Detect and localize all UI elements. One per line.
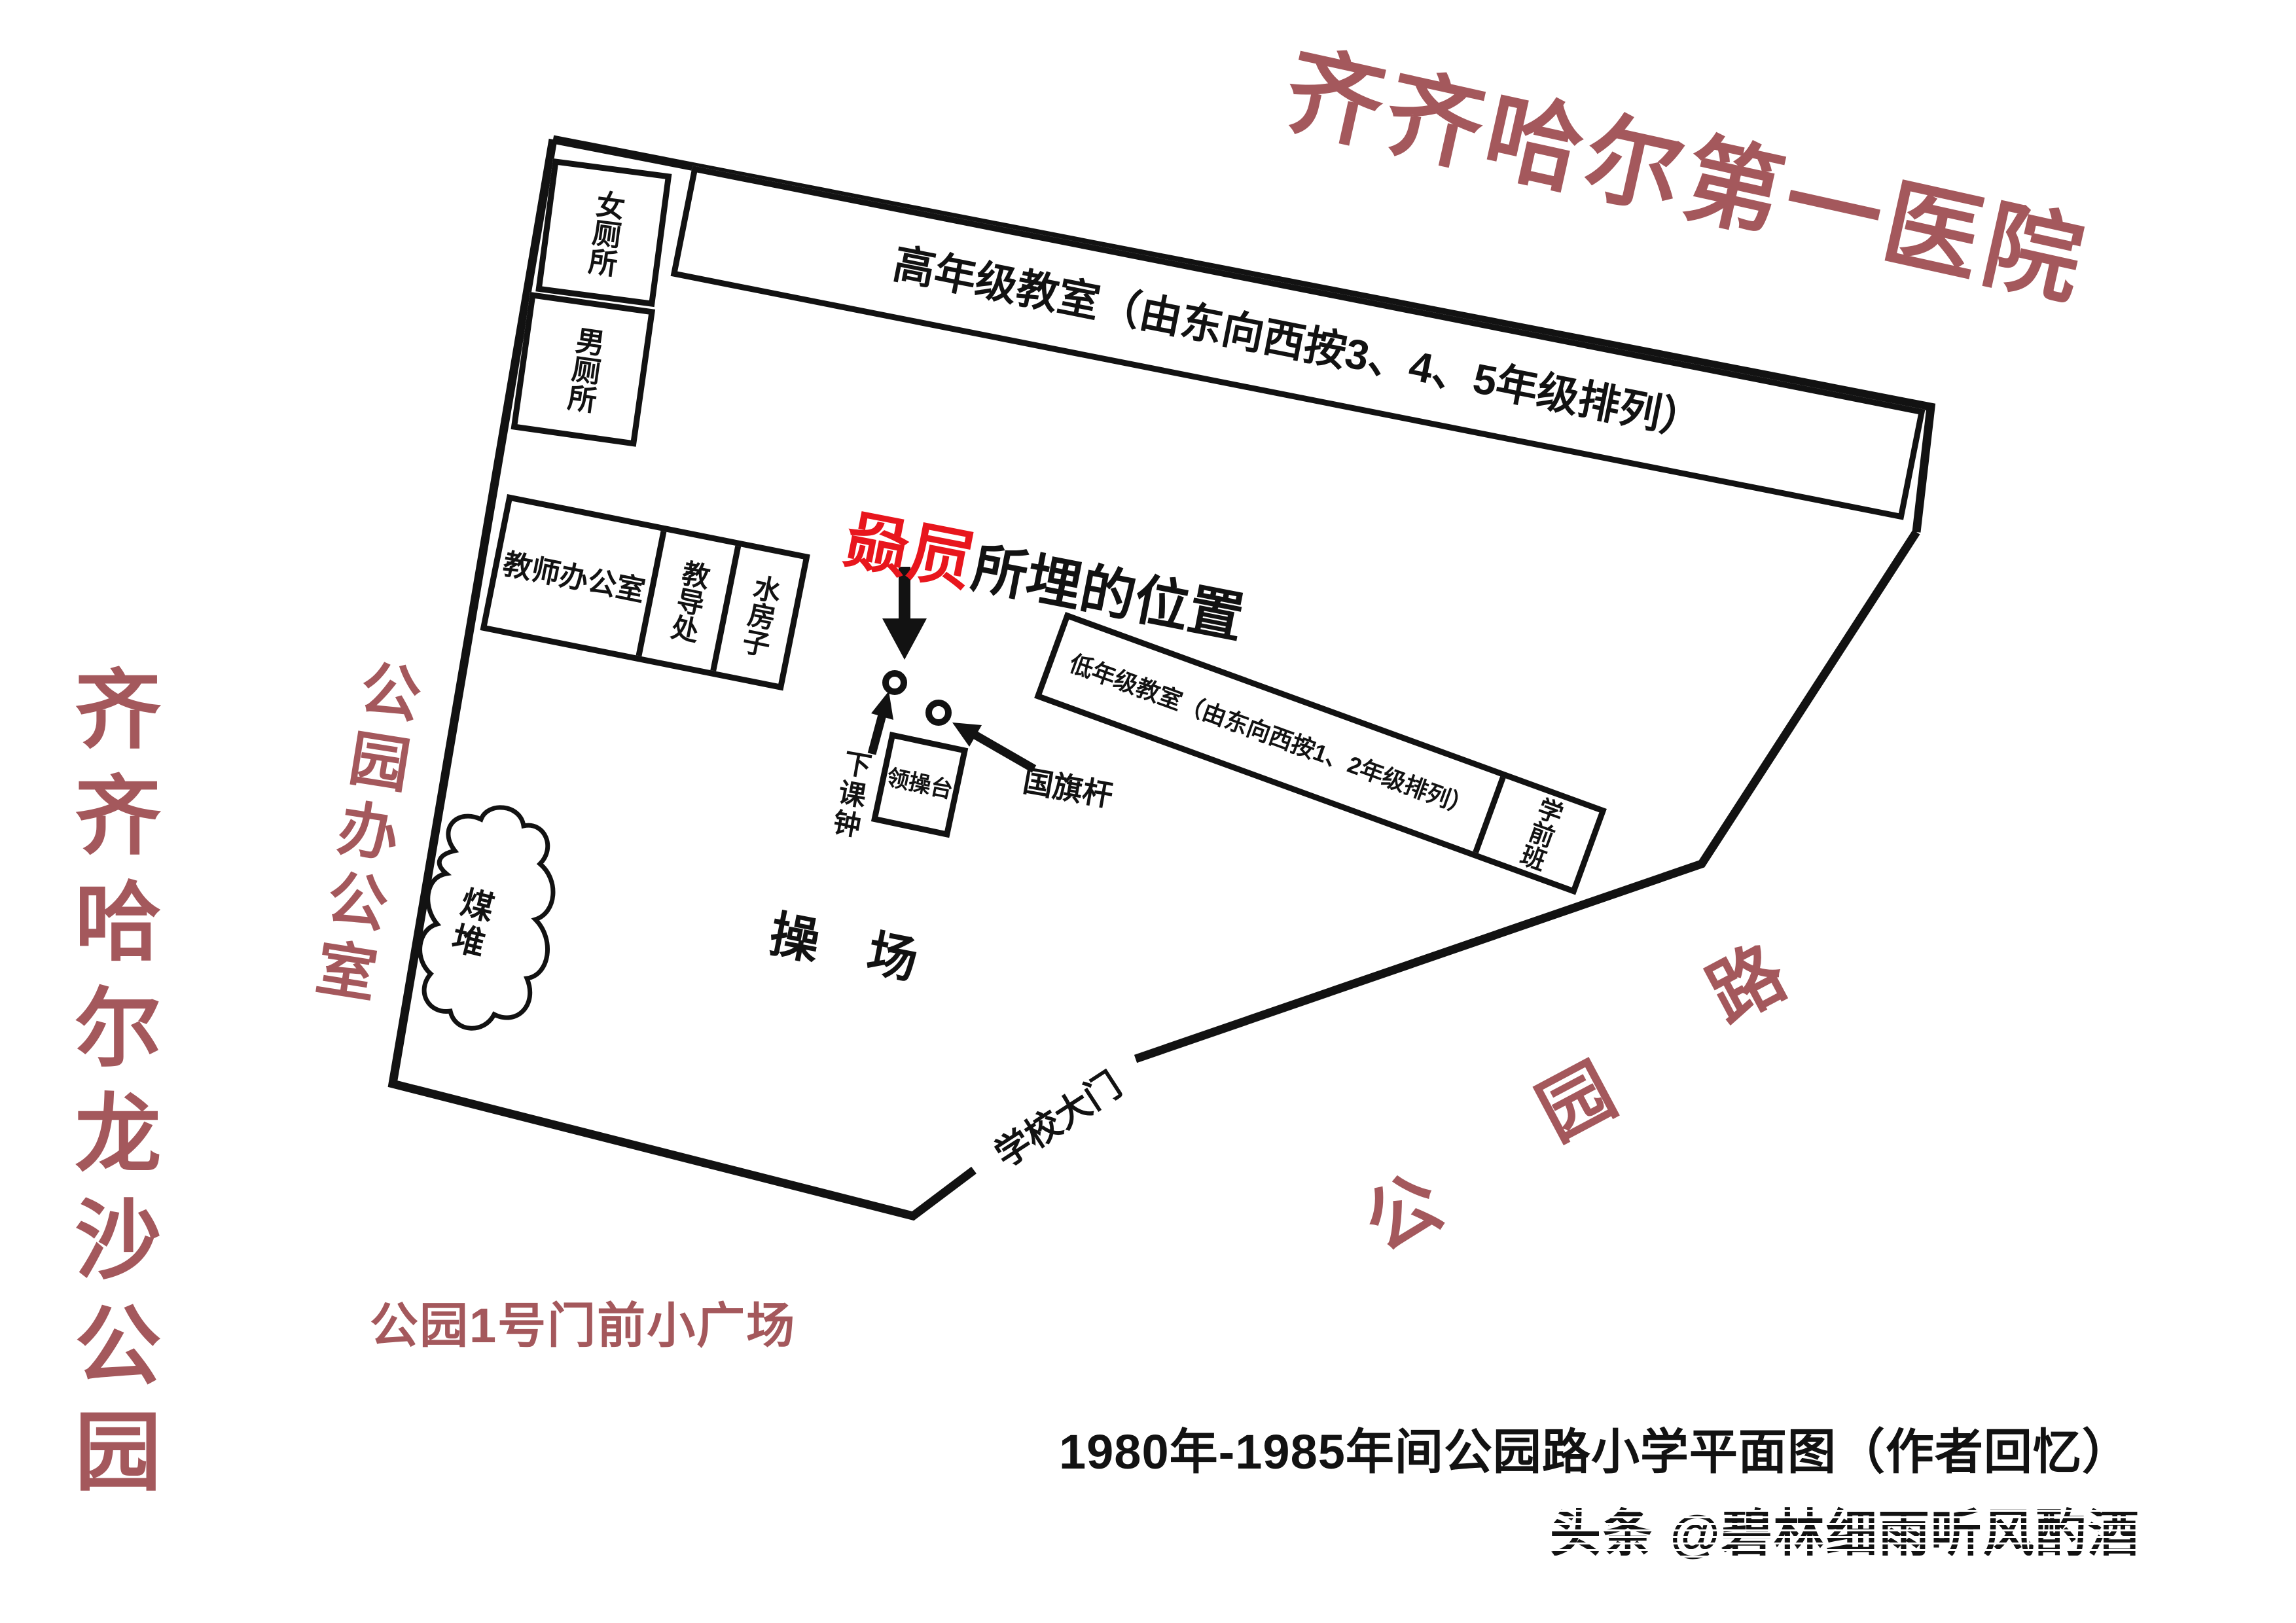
- plaza-caption: 公园1号门前小广场: [370, 1299, 796, 1353]
- school-plan-map: 女厕所 男厕所 高年级教室（由东向西按3、4、5年级排列） 教师办公室 教导处 …: [0, 0, 2296, 1623]
- teachers-office-label: 教师办公室: [500, 548, 647, 608]
- flagpole-arrow-shaft: [974, 734, 1034, 769]
- men-toilet-label: 男厕所: [562, 325, 605, 414]
- building-women-toilet: 女厕所: [535, 158, 672, 307]
- water-house-label: 水房子: [737, 572, 783, 659]
- park-label: 齐齐哈尔龙沙公园: [62, 664, 159, 1512]
- building-men-toilet: 男厕所: [511, 292, 655, 447]
- bell-arrow-head: [871, 691, 893, 720]
- bixi-arrow-head: [882, 618, 927, 660]
- bell-arrow-shaft: [872, 710, 884, 754]
- room-teachers-office: 教师办公室: [487, 501, 661, 656]
- watermark: 头条 @碧林细雨听风酌酒: [1550, 1505, 2140, 1562]
- flagpole-circle: [929, 703, 948, 722]
- map-caption: 1980年-1985年间公园路小学平面图（作者回忆）: [1059, 1425, 2131, 1480]
- women-toilet-label: 女厕所: [583, 188, 625, 277]
- platform-label: 领操台: [884, 766, 955, 804]
- deans-office-label: 教导处: [666, 558, 711, 645]
- bell-circle: [886, 673, 904, 692]
- preschool-label: 学前班: [1513, 793, 1564, 872]
